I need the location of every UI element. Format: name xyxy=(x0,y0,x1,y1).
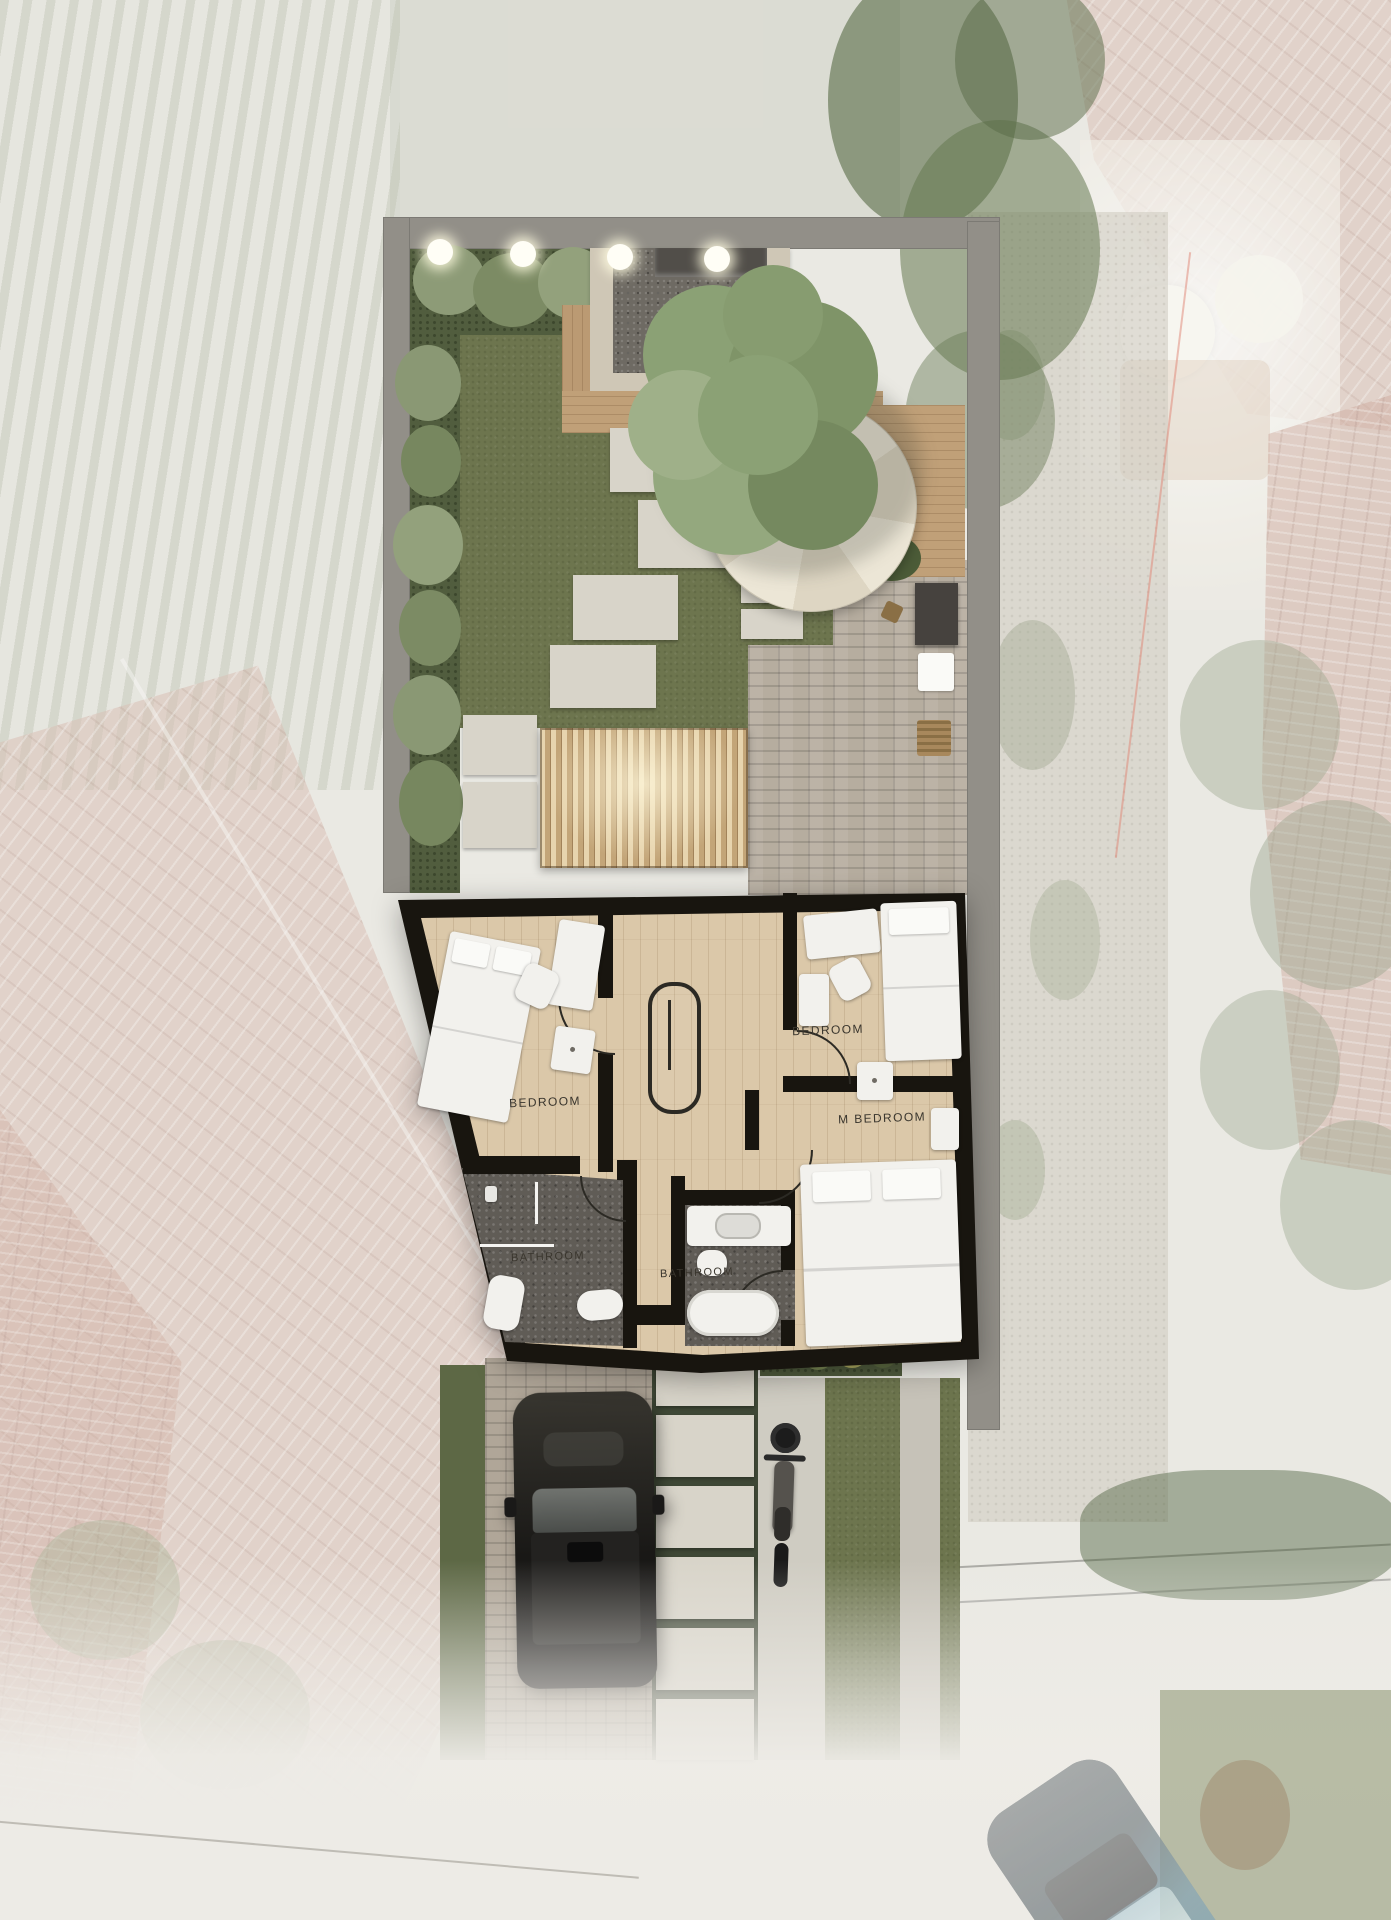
nightstand xyxy=(857,1062,893,1100)
wall xyxy=(783,893,797,1030)
garden-bench xyxy=(917,720,951,756)
globe-light xyxy=(427,239,453,265)
shrub xyxy=(399,590,461,666)
shrub xyxy=(401,425,461,497)
moto-front-wheel xyxy=(770,1423,801,1454)
garden-tree xyxy=(698,355,818,475)
site-plan-render: BEDROOM BEDROOM M BEDROOM BATHROOM BATHR… xyxy=(0,0,1391,1920)
shrub xyxy=(395,345,461,421)
wall xyxy=(623,1305,685,1325)
stairwell xyxy=(648,982,701,1114)
garden-tree xyxy=(723,265,823,365)
wall xyxy=(671,1176,685,1310)
stepping-slab xyxy=(550,645,656,708)
verge-bare-patch xyxy=(1200,1760,1290,1870)
vanity-basin xyxy=(715,1213,761,1239)
globe-light xyxy=(607,244,633,270)
stepping-slab xyxy=(573,575,678,640)
stair-rail xyxy=(668,1000,671,1070)
outdoor-table xyxy=(918,653,954,691)
blanket-fold xyxy=(883,985,959,990)
floor-plan: BEDROOM BEDROOM M BEDROOM BATHROOM BATHR… xyxy=(385,850,995,1380)
suv-mirror xyxy=(652,1495,664,1515)
walkway-slab xyxy=(656,1415,754,1477)
knob xyxy=(872,1078,877,1083)
knob xyxy=(570,1047,576,1053)
boundary-wall-top xyxy=(383,217,1000,249)
moto-seat xyxy=(774,1507,791,1542)
desk xyxy=(803,908,881,959)
pillow xyxy=(451,938,491,968)
wall xyxy=(745,1090,759,1150)
pillow xyxy=(882,1168,941,1200)
blanket-fold xyxy=(432,1025,523,1045)
shrub xyxy=(393,505,463,585)
walkway-slab xyxy=(656,1486,754,1548)
shrub xyxy=(393,675,461,755)
dresser xyxy=(799,974,829,1026)
nightstand xyxy=(550,1025,596,1074)
wall xyxy=(781,1320,795,1346)
pillow xyxy=(888,907,949,935)
bathtub xyxy=(687,1290,779,1336)
suv-windshield xyxy=(532,1487,637,1533)
bed xyxy=(880,901,961,1062)
wall xyxy=(598,1053,613,1172)
outdoor-kitchen xyxy=(915,583,958,645)
suv-hood-line xyxy=(543,1431,624,1466)
shrub xyxy=(399,760,463,846)
blanket-fold xyxy=(804,1263,960,1271)
shower-screen xyxy=(535,1182,538,1224)
shower-screen xyxy=(480,1244,554,1247)
globe-light xyxy=(704,246,730,272)
stepping-slab xyxy=(463,715,537,775)
louvre-glow xyxy=(540,728,748,868)
bed-master xyxy=(800,1159,962,1346)
pillow xyxy=(812,1170,871,1202)
shower-head xyxy=(485,1186,497,1202)
suv-mirror xyxy=(504,1497,516,1517)
vanity-counter xyxy=(687,1206,791,1246)
globe-light xyxy=(510,241,536,267)
stepping-slab xyxy=(463,782,537,848)
wall xyxy=(463,1156,580,1174)
wood-deck xyxy=(562,305,590,391)
stepping-slab xyxy=(741,609,803,639)
